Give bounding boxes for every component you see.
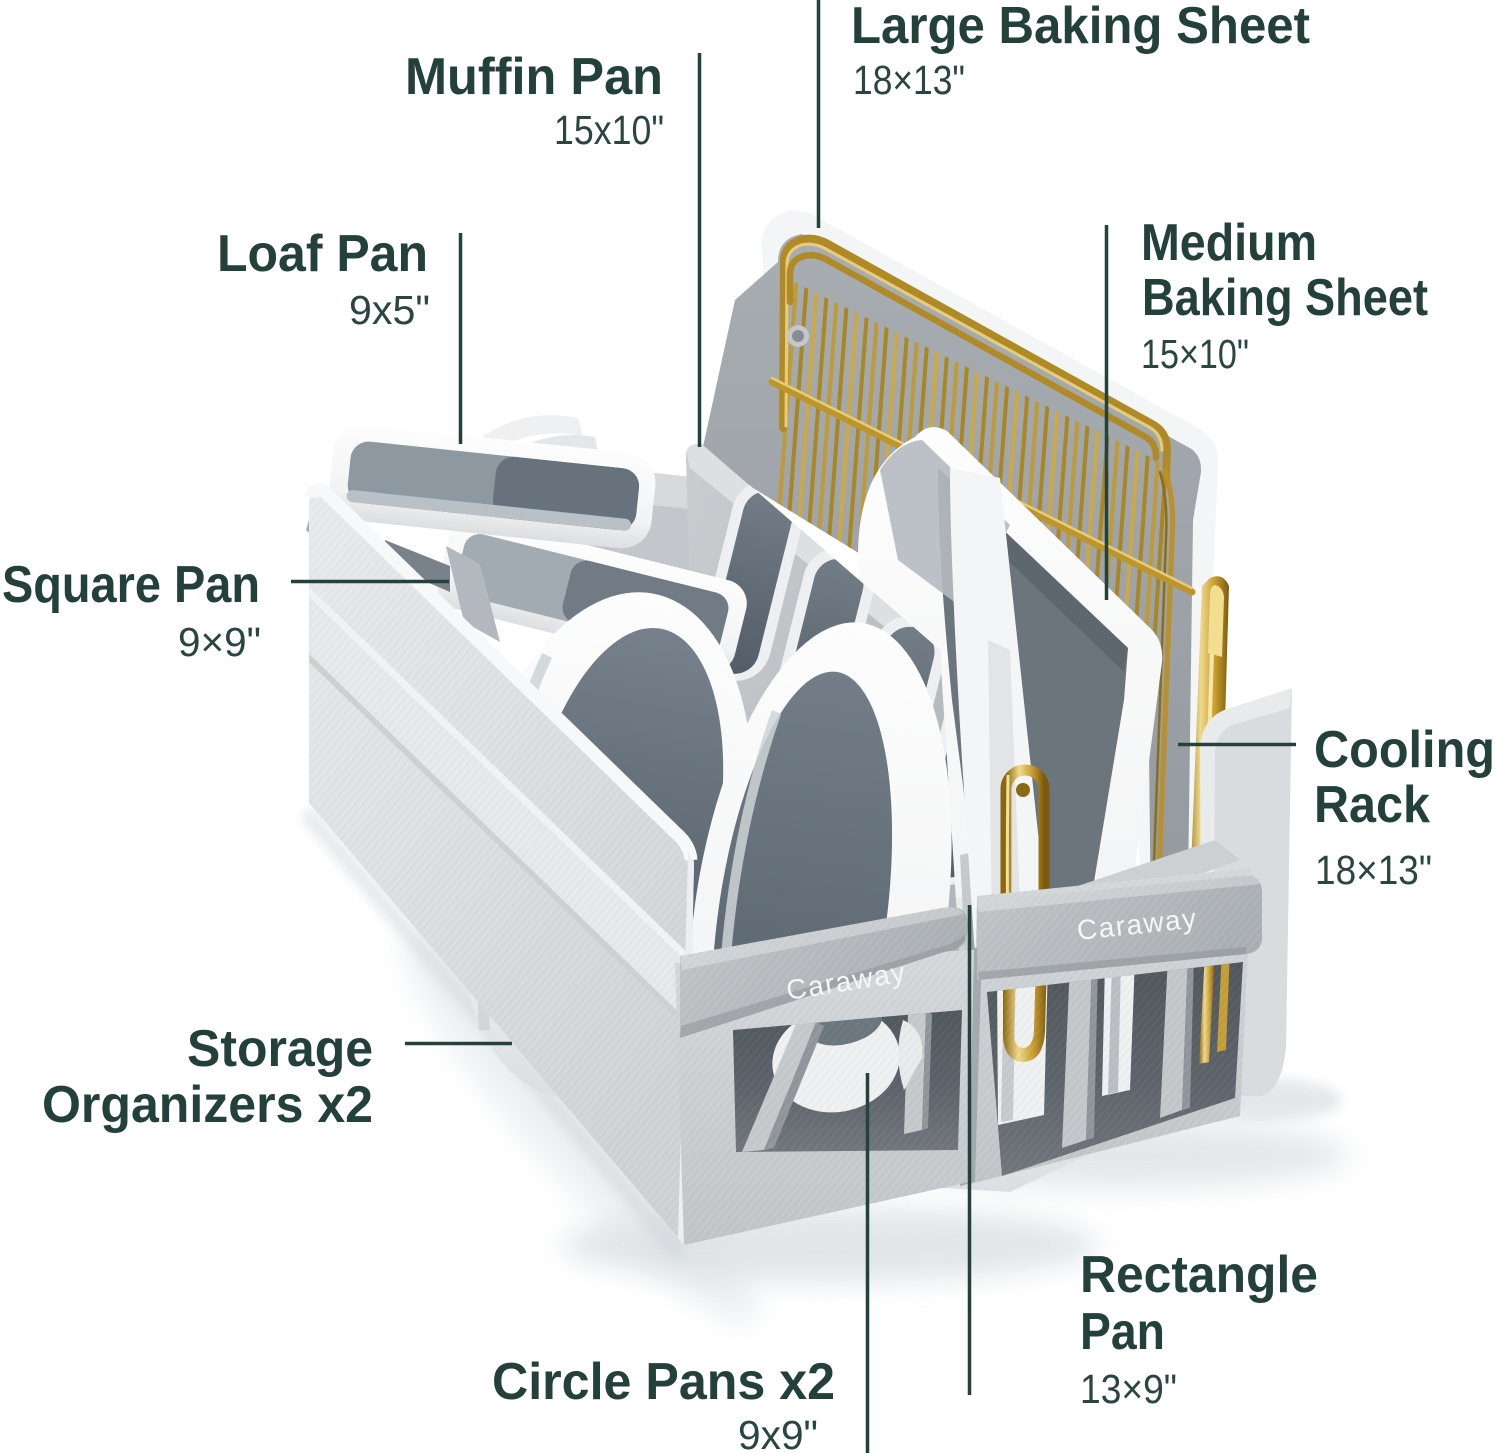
svg-text:9x5": 9x5" <box>349 287 430 333</box>
svg-text:Circle Pans x2: Circle Pans x2 <box>492 1353 835 1411</box>
svg-text:Rectangle: Rectangle <box>1080 1246 1318 1304</box>
svg-text:Pan: Pan <box>1080 1303 1165 1361</box>
svg-text:13×9": 13×9" <box>1080 1366 1177 1412</box>
svg-text:15×10": 15×10" <box>1141 331 1249 377</box>
svg-text:Medium: Medium <box>1141 214 1317 272</box>
svg-text:Muffin Pan: Muffin Pan <box>405 48 663 106</box>
svg-text:15x10": 15x10" <box>554 107 664 153</box>
svg-text:9x9": 9x9" <box>738 1412 818 1453</box>
svg-text:Rack: Rack <box>1314 776 1430 834</box>
svg-text:Baking Sheet: Baking Sheet <box>1142 269 1428 327</box>
svg-text:18×13": 18×13" <box>1315 847 1432 893</box>
svg-text:18×13": 18×13" <box>853 57 965 103</box>
svg-text:9×9": 9×9" <box>178 619 261 665</box>
svg-text:Cooling: Cooling <box>1314 721 1495 779</box>
svg-text:Large Baking Sheet: Large Baking Sheet <box>851 0 1310 55</box>
svg-text:Loaf Pan: Loaf Pan <box>217 225 428 283</box>
svg-text:Square Pan: Square Pan <box>2 556 260 614</box>
svg-text:Storage: Storage <box>187 1020 373 1078</box>
svg-text:Organizers x2: Organizers x2 <box>42 1076 373 1134</box>
